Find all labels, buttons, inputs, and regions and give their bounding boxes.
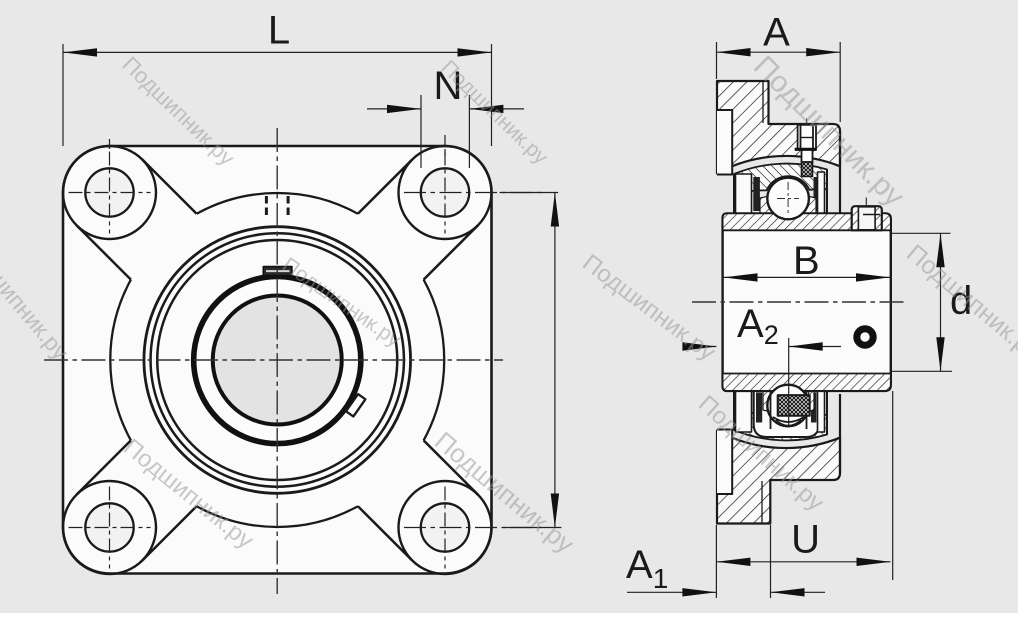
svg-text:A: A [763,11,790,55]
svg-text:L: L [268,9,290,53]
svg-text:B: B [793,239,820,283]
svg-text:U: U [791,518,820,562]
